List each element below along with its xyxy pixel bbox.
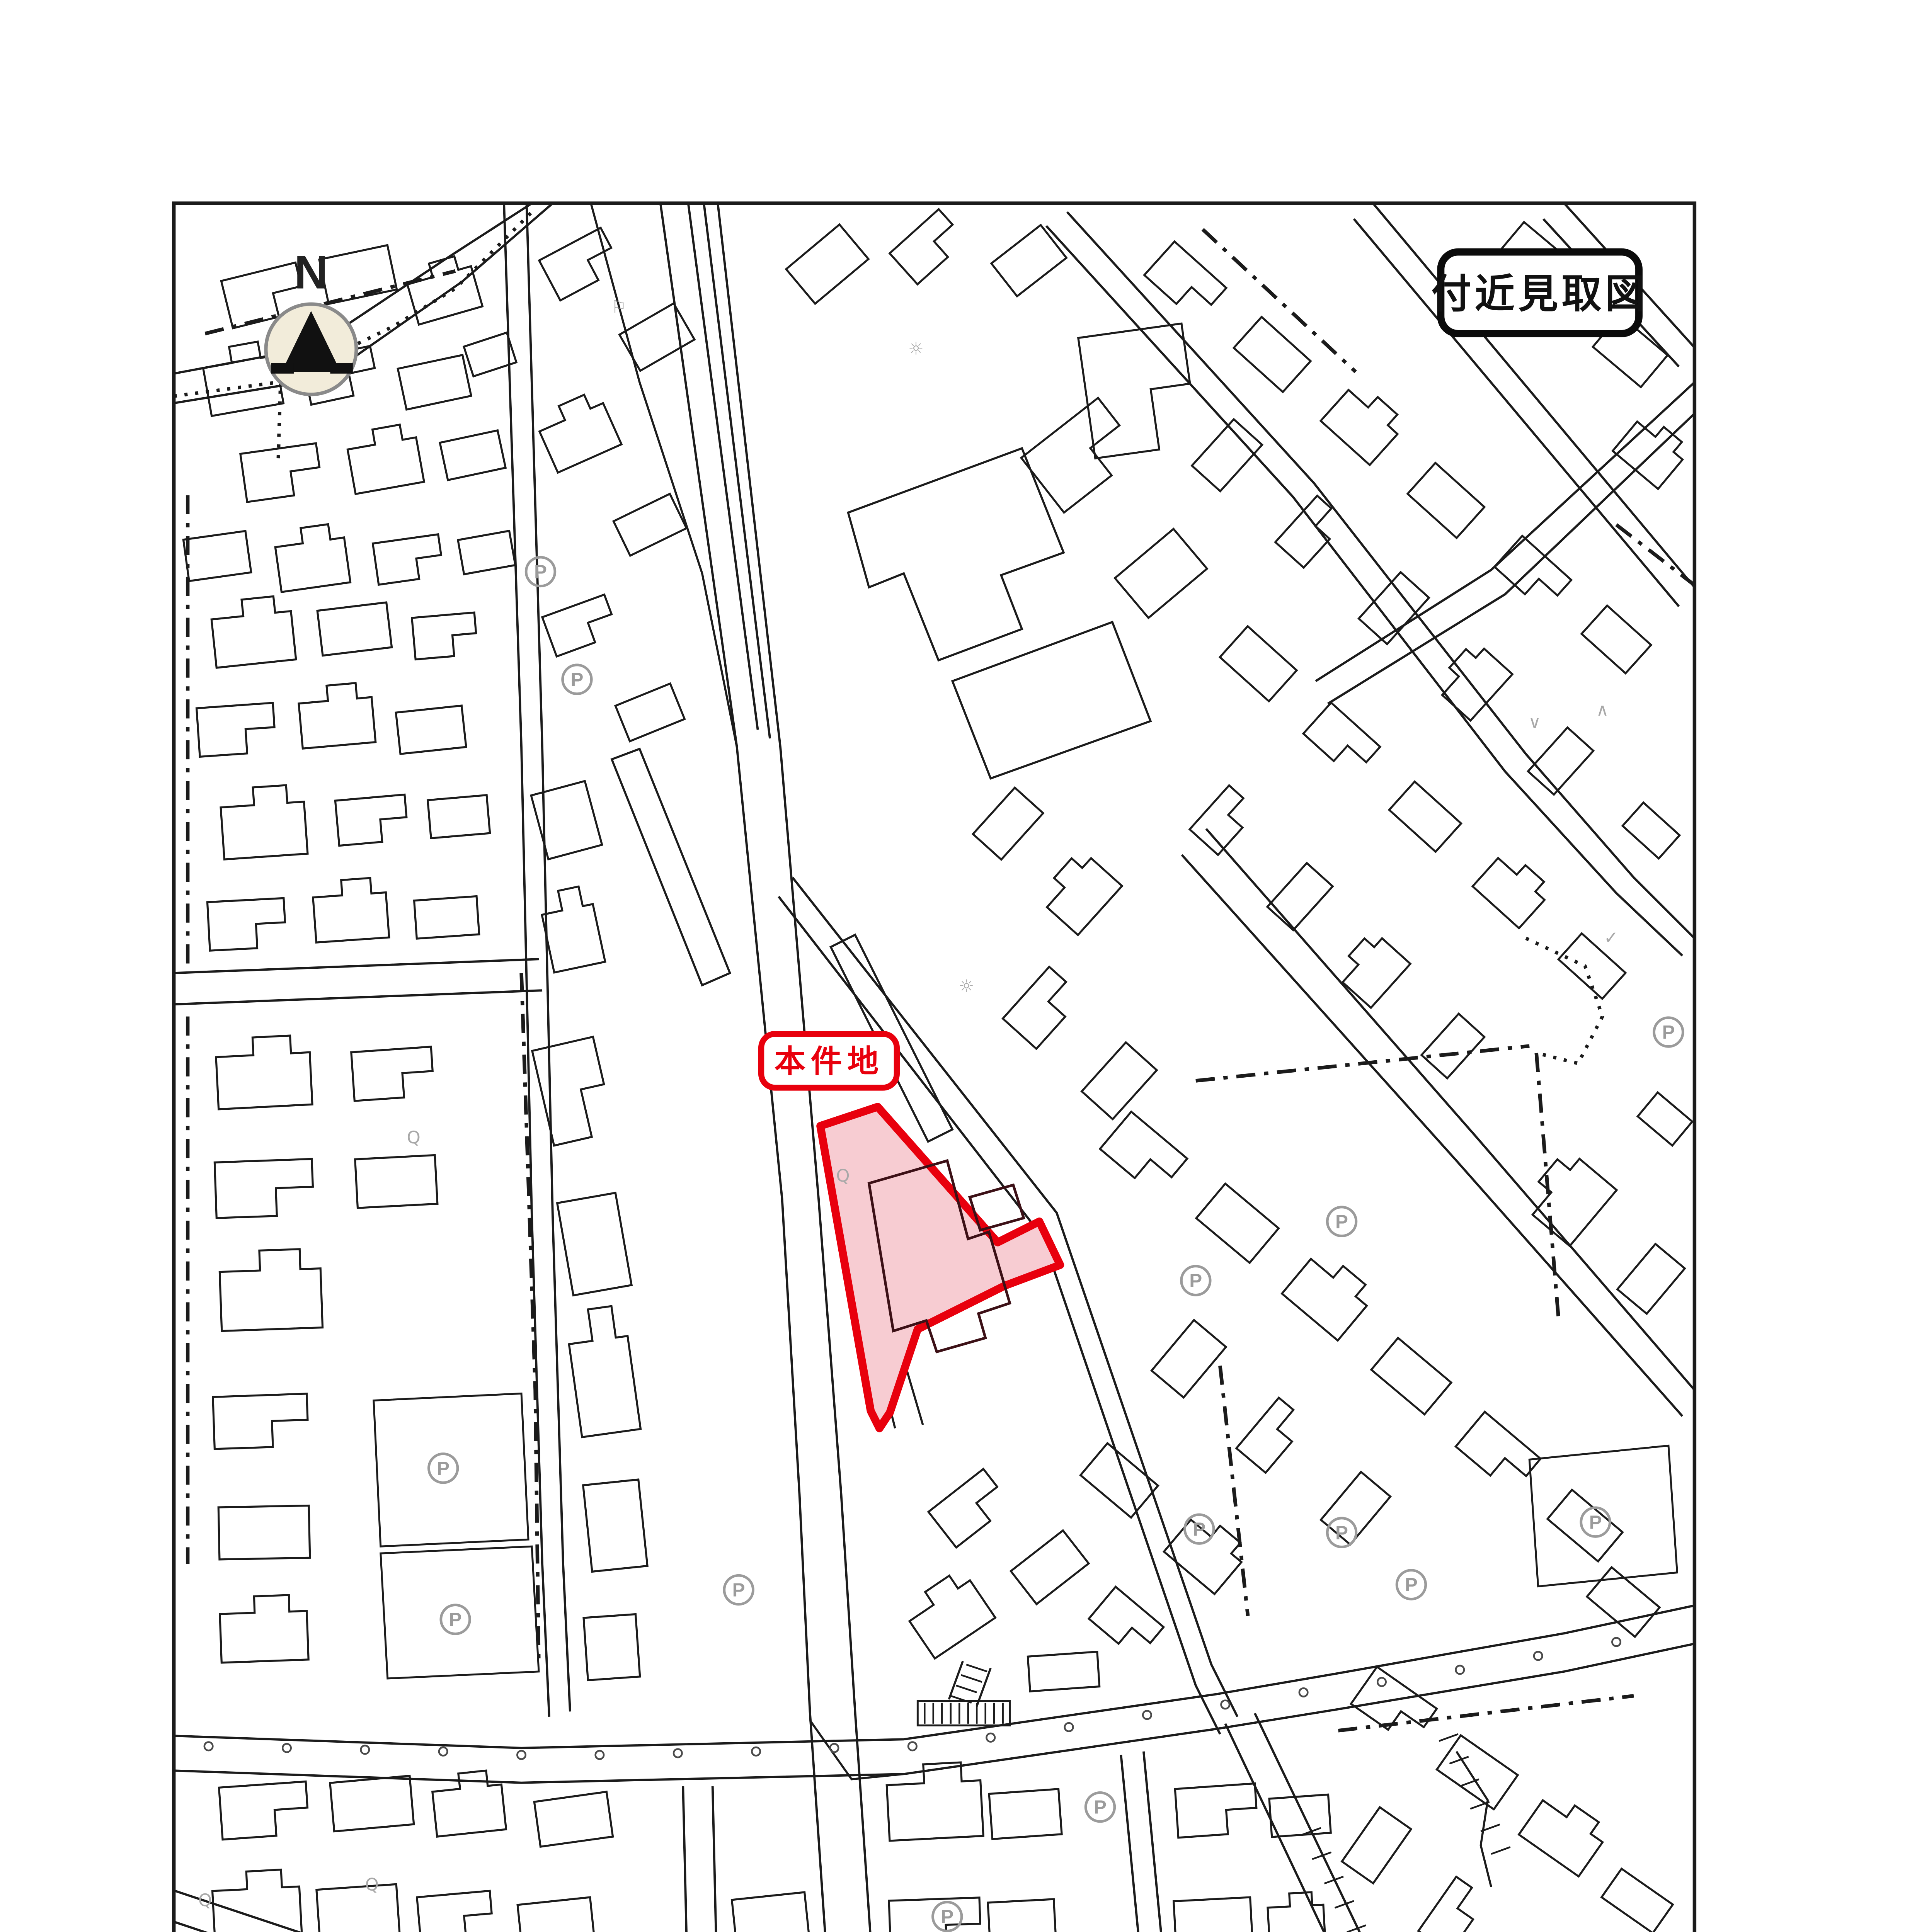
svg-text:∨: ∨: [1528, 712, 1541, 732]
parking-and-symbol-marks: PPPPPPPPPPPPPPPPPQQQQ☼☼⚐∧✓∨∧: [198, 296, 1683, 1932]
svg-text:P: P: [1189, 1270, 1202, 1291]
north-label: N: [294, 246, 328, 298]
vicinity-map-page: PPPPPPPPPPPPPPPPPQQQQ☼☼⚐∧✓∨∧ N 付近見取図 本件地…: [0, 0, 1917, 1932]
svg-text:Q: Q: [198, 1890, 212, 1910]
north-arrow-base-right: [330, 363, 352, 374]
svg-text:⚐: ⚐: [611, 296, 627, 317]
title-box: 付近見取図: [1431, 252, 1648, 333]
svg-text:Q: Q: [836, 1165, 850, 1186]
building-outlines: [183, 209, 1692, 1932]
svg-text:✓: ✓: [1604, 927, 1619, 948]
svg-text:P: P: [941, 1906, 953, 1927]
svg-text:P: P: [1662, 1022, 1675, 1043]
road-lines: [174, 203, 1695, 1932]
svg-text:P: P: [1335, 1522, 1348, 1543]
misc-lines: [591, 203, 1491, 1887]
svg-text:☼: ☼: [908, 338, 924, 359]
svg-text:∧: ∧: [1596, 700, 1609, 720]
svg-text:P: P: [732, 1580, 745, 1601]
site-parcel: [821, 1107, 1061, 1428]
north-arrow-base-left: [271, 363, 294, 374]
svg-text:P: P: [1094, 1797, 1107, 1818]
svg-text:P: P: [449, 1609, 462, 1630]
svg-text:P: P: [534, 561, 547, 583]
svg-text:P: P: [570, 669, 583, 690]
map-border: [174, 203, 1695, 1932]
svg-text:Q: Q: [407, 1127, 421, 1148]
site-label: 本件地: [774, 1044, 884, 1079]
svg-text:Q: Q: [365, 1874, 379, 1895]
north-indicator: N: [266, 246, 356, 394]
svg-text:P: P: [1405, 1574, 1418, 1595]
svg-text:☼: ☼: [958, 976, 974, 997]
page-title: 付近見取図: [1431, 271, 1648, 316]
svg-text:P: P: [1193, 1519, 1205, 1540]
map-canvas: PPPPPPPPPPPPPPPPPQQQQ☼☼⚐∧✓∨∧ N 付近見取図 本件地…: [0, 0, 1917, 1932]
site-label-box: 本件地: [761, 1034, 897, 1088]
svg-text:P: P: [437, 1458, 449, 1479]
svg-text:P: P: [1335, 1211, 1348, 1232]
svg-text:P: P: [1589, 1512, 1602, 1533]
